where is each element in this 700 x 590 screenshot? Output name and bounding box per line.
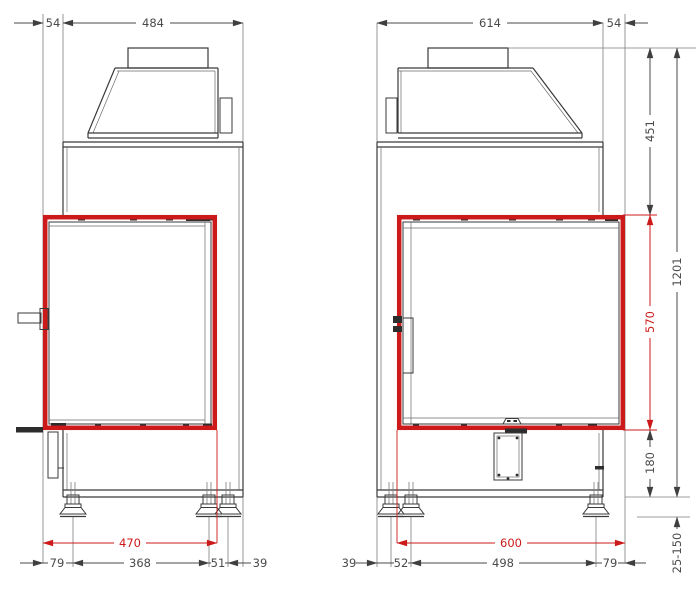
left-lower-bracket [48, 432, 58, 478]
right-view [377, 14, 696, 567]
dim-feet-range: 25-150 [670, 533, 684, 574]
left-door [49, 216, 215, 428]
dim-right-width: 614 [479, 16, 501, 30]
dim-left-front-foot: 79 [50, 556, 65, 570]
right-side-tick [595, 466, 604, 470]
dim-left-rear: 39 [253, 556, 268, 570]
dim-height-451: 451 [643, 120, 657, 142]
left-hood-bracket [220, 98, 232, 133]
dim-right-front-foot: 79 [603, 556, 618, 570]
dim-glass-height: 570 [643, 311, 657, 333]
left-latch-bar [16, 427, 43, 433]
foot [196, 482, 222, 567]
right-glass-frame [399, 217, 623, 428]
foot [215, 482, 241, 567]
right-feet [378, 482, 609, 567]
dim-right-rear: 39 [342, 556, 357, 570]
dim-left-depth: 484 [142, 16, 164, 30]
dim-left-foot-gap: 51 [211, 556, 226, 570]
dim-left-glass-depth: 470 [119, 536, 141, 550]
right-mounting-plate [494, 433, 522, 480]
left-feet [60, 482, 241, 567]
left-glass-frame [45, 217, 215, 428]
dim-right-top-offset: 54 [607, 16, 622, 30]
dim-total-height: 1201 [670, 257, 684, 286]
dim-right-glass-width: 600 [500, 536, 522, 550]
dim-below-glass: 180 [643, 452, 657, 474]
left-hood [88, 68, 232, 138]
left-view [16, 14, 243, 567]
foot [378, 482, 404, 567]
dim-right-foot-span: 498 [492, 556, 514, 570]
drawing-canvas: 54 484 614 54 451 570 180 1201 [0, 0, 700, 590]
dim-right-foot-gap: 52 [394, 556, 409, 570]
foot [398, 482, 424, 567]
foot [60, 482, 86, 567]
right-hood [386, 68, 582, 138]
foot [583, 482, 609, 567]
right-hood-bracket [386, 98, 397, 133]
right-door [403, 216, 619, 428]
right-door-handle [393, 316, 413, 373]
right-flue-collar [428, 48, 508, 68]
left-flue-collar [128, 48, 208, 68]
technical-drawing: 54 484 614 54 451 570 180 1201 [0, 0, 700, 590]
dim-left-top-offset: 54 [46, 16, 61, 30]
dim-left-foot-span: 368 [129, 556, 151, 570]
